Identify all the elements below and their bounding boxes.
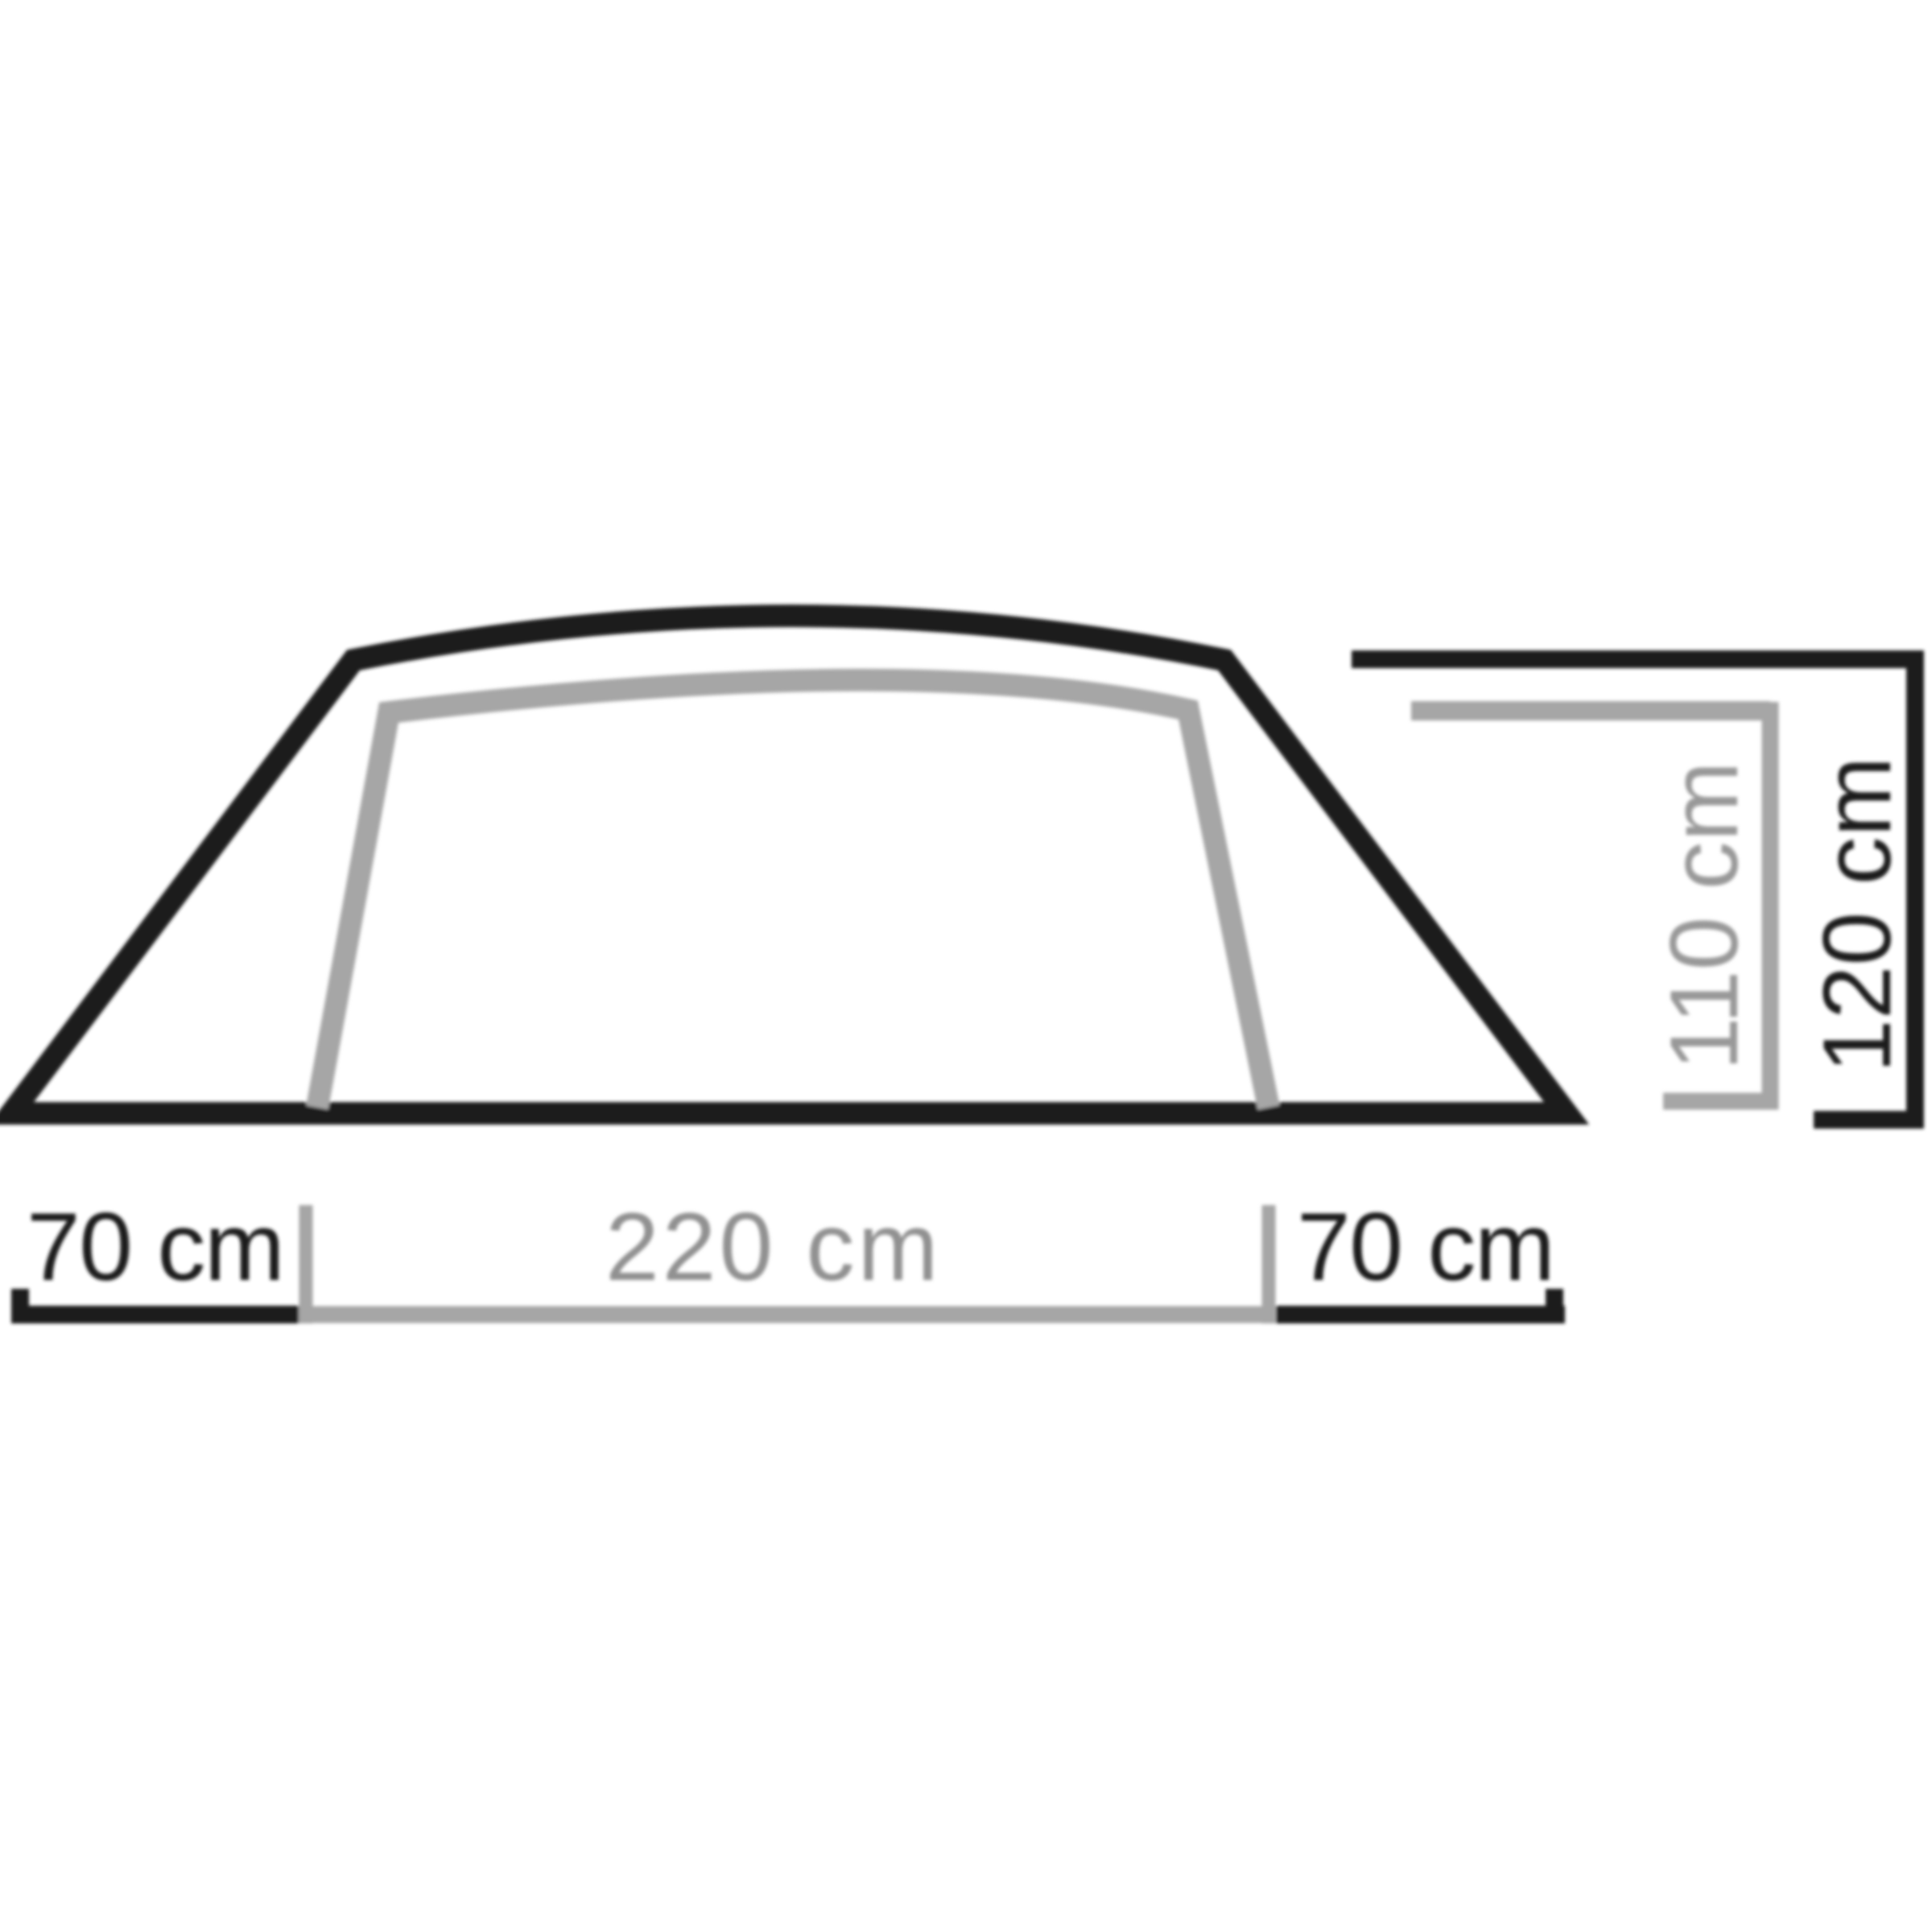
svg-text:110 cm: 110 cm [1650, 761, 1758, 1071]
svg-text:70 cm: 70 cm [27, 1193, 283, 1301]
svg-text:70 cm: 70 cm [1297, 1193, 1554, 1301]
svg-text:220 cm: 220 cm [605, 1193, 942, 1301]
svg-text:120 cm: 120 cm [1803, 756, 1911, 1073]
